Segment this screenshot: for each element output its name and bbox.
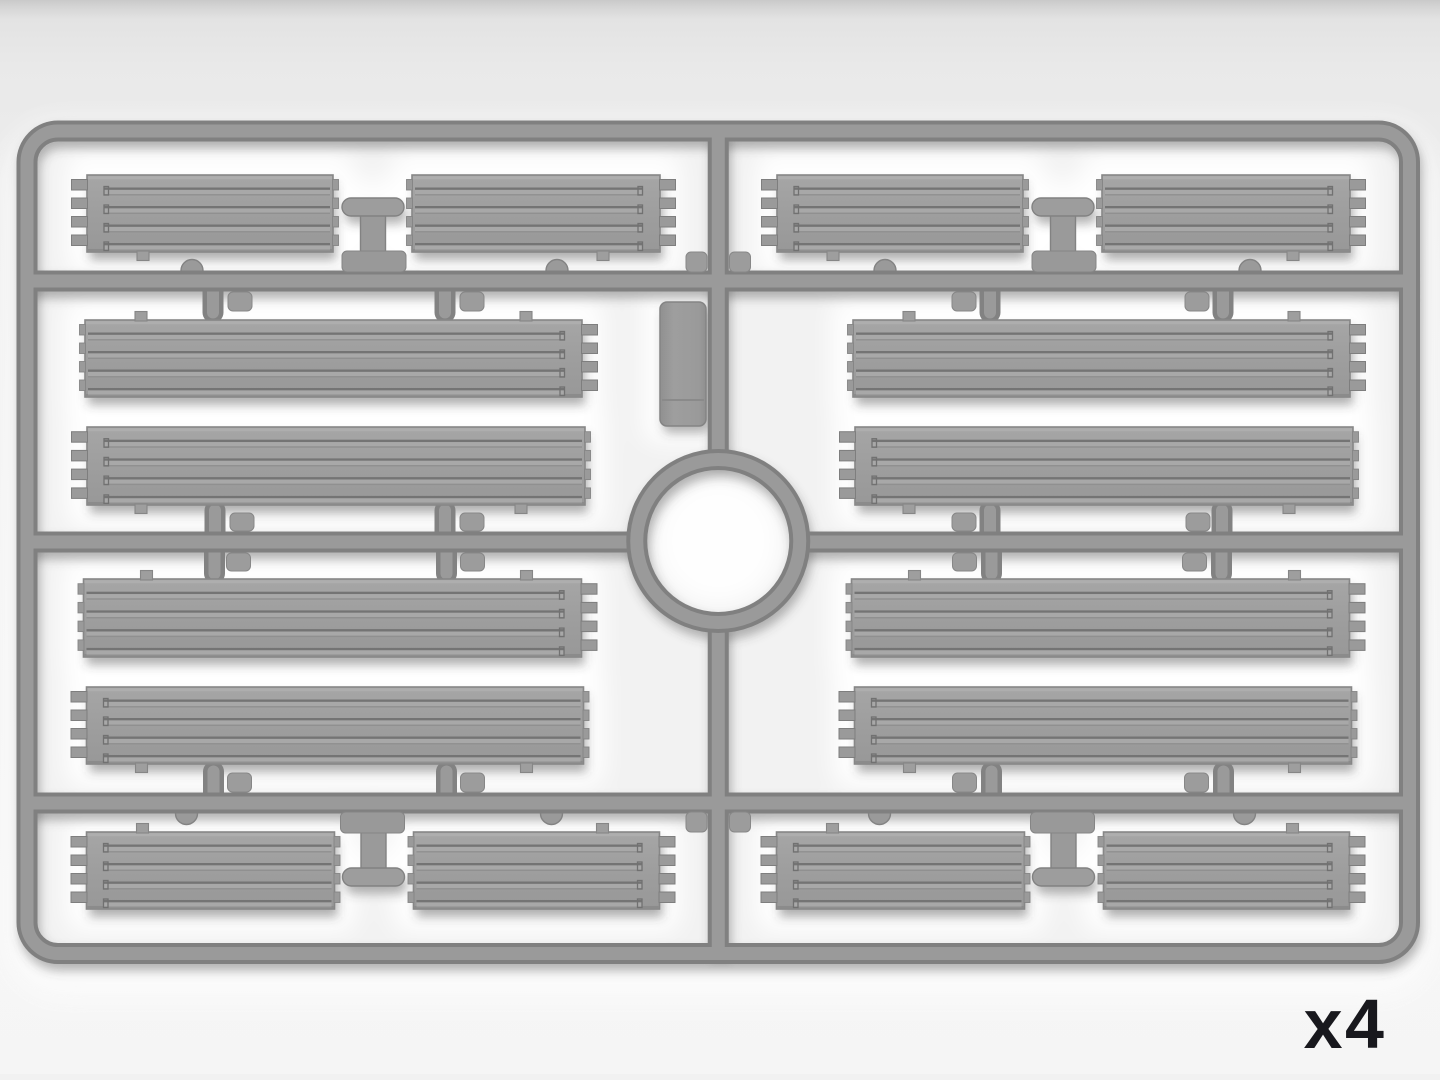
svg-text:x4: x4 bbox=[1304, 985, 1387, 1063]
